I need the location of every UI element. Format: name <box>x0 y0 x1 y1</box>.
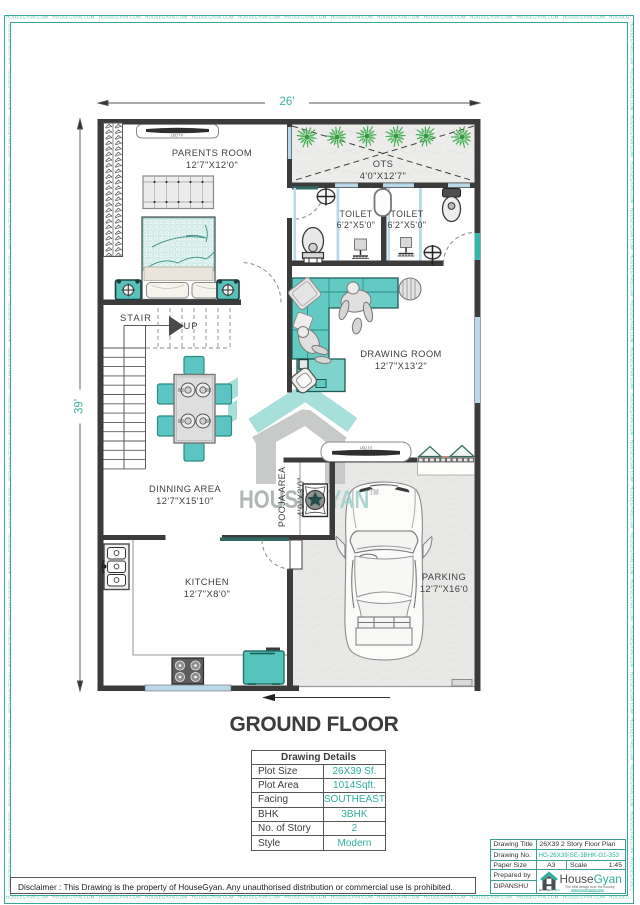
svg-text:LED TV: LED TV <box>171 134 184 138</box>
svg-text:LED TV: LED TV <box>360 446 373 450</box>
